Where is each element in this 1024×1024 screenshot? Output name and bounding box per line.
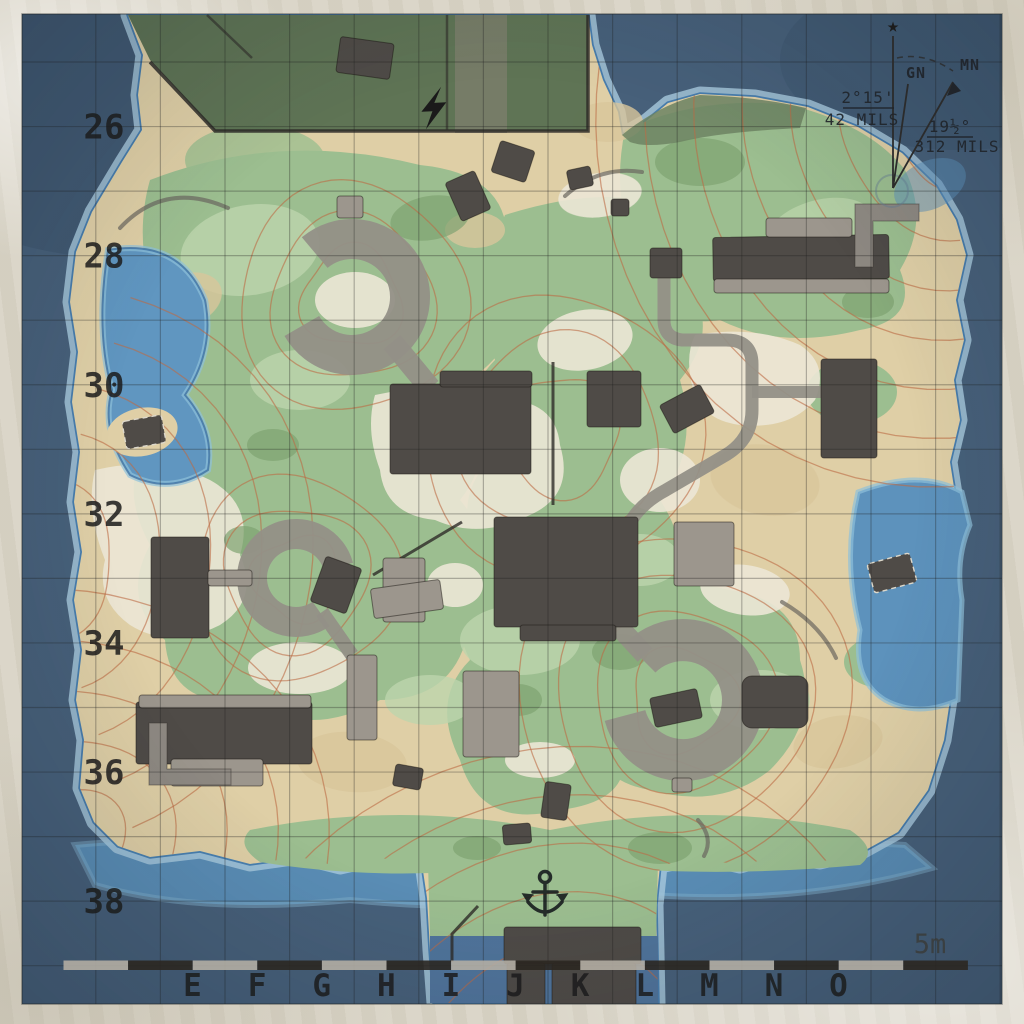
grid-column-label: G [312, 968, 331, 1004]
magnetic-declination-mils: 312 MILS [914, 137, 999, 156]
grid-row-label: 30 [84, 366, 125, 406]
grid-column-label: H [377, 968, 396, 1004]
scale-bar-segment [903, 961, 968, 971]
grid-column-label: F [248, 968, 267, 1004]
grid-declination-angle: 2°15' [841, 88, 894, 107]
grid-column-label: M [700, 968, 719, 1004]
scale-bar-segment [839, 961, 904, 971]
grid-declination-mils: 42 MILS [825, 110, 899, 129]
grid-row-label: 34 [84, 624, 125, 664]
grid-row-label: 32 [84, 495, 125, 535]
map-sheet: ★ GN MN 2°15' 42 MILS 19½° 312 MILS 5m 2… [0, 0, 1024, 1024]
north-star-icon: ★ [887, 13, 899, 37]
vignette [22, 14, 1002, 1004]
grid-row-label: 38 [84, 882, 125, 922]
grid-column-label: O [829, 968, 848, 1004]
grid-row-label: 28 [84, 237, 125, 277]
grid-row-label: 36 [84, 753, 125, 793]
grid-column-label: N [765, 968, 784, 1004]
grid-north-label: GN [906, 64, 926, 82]
map-canvas[interactable] [0, 0, 1024, 1024]
grid-row-label: 26 [84, 108, 125, 148]
grid-column-label: I [442, 968, 461, 1004]
magnetic-north-label: MN [960, 56, 980, 74]
grid-column-label: L [635, 968, 654, 1004]
grid-column-label: E [183, 968, 202, 1004]
scale-label: 5m [914, 929, 947, 960]
grid-column-label: K [571, 968, 590, 1004]
scale-bar-segment [64, 961, 129, 971]
magnetic-declination-angle: 19½° [929, 117, 972, 136]
grid-column-label: J [506, 968, 525, 1004]
